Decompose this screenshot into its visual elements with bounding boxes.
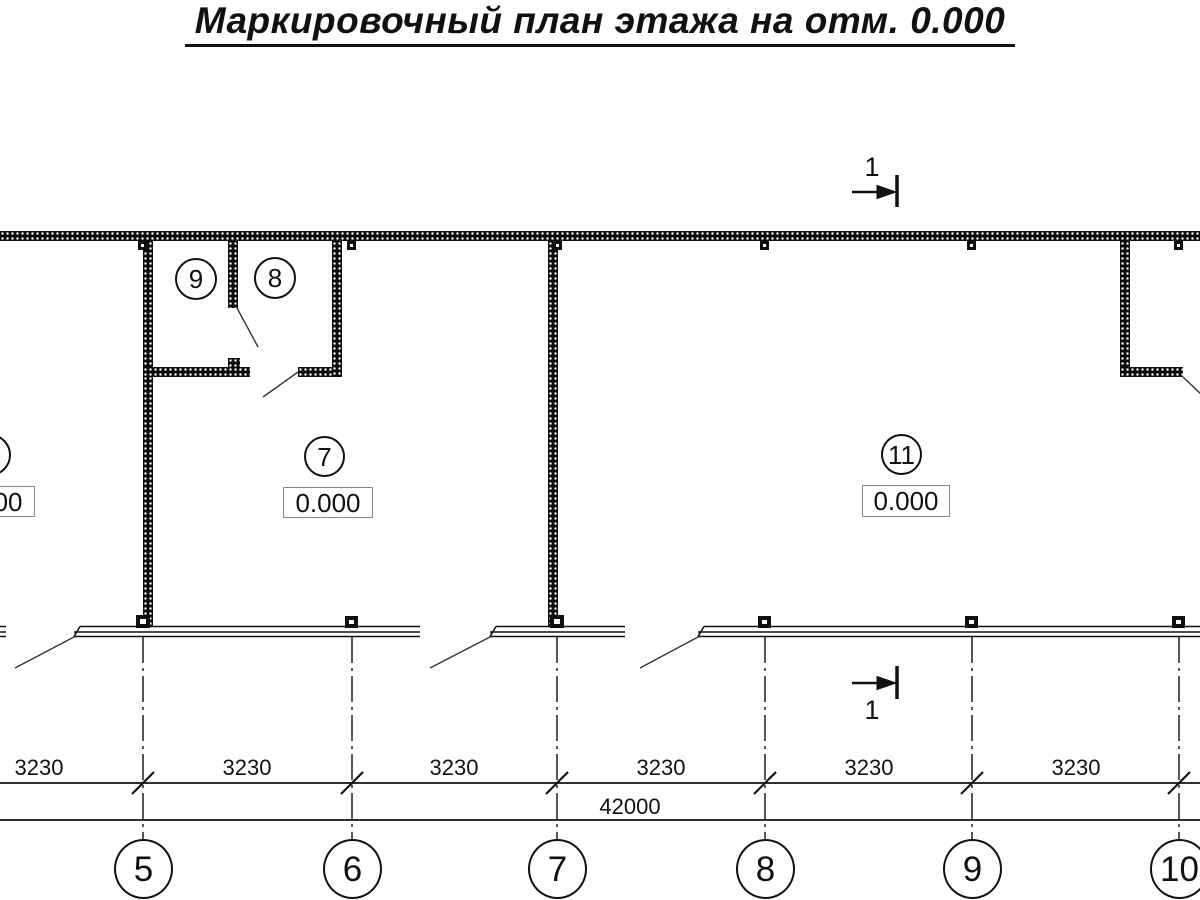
axis-bubble-9: 9 [943, 839, 1002, 899]
elevation-box-room7: 0.000 [283, 487, 373, 518]
door-leaf-room9 [237, 308, 258, 347]
drawing-title-text: Маркировочный план этажа на отм. 0.000 [185, 2, 1016, 47]
dim-bay-3: 3230 [414, 757, 494, 779]
sill-marker-axis-10 [1172, 616, 1185, 628]
room-bubble-11: 11 [881, 434, 922, 475]
section-label-top-text: 1 [864, 152, 879, 182]
break-line-1 [15, 637, 74, 668]
top-marker-axis-8 [760, 241, 769, 250]
wall-room9-bottom [143, 367, 250, 377]
room-number-8: 8 [268, 265, 282, 291]
section-bottom-arrowhead [877, 677, 896, 690]
room-bubble-9: 9 [175, 258, 217, 300]
axis-bubble-5: 5 [114, 839, 173, 899]
axis-label-10: 10 [1160, 852, 1199, 887]
dim-bay-2: 3230 [207, 757, 287, 779]
dimension-line-bays [0, 772, 1200, 794]
sill-band-2 [490, 627, 625, 637]
section-label-bottom-text: 1 [864, 695, 879, 725]
axis-label-6: 6 [343, 852, 362, 887]
section-top-arrowhead [877, 186, 896, 199]
axis-label-7: 7 [548, 852, 567, 887]
sill-band-1 [74, 627, 420, 637]
top-marker-axis-5 [138, 241, 147, 250]
section-label-top: 1 [855, 154, 889, 181]
elevation-value-left: 0.000 [0, 489, 23, 515]
room-number-11: 11 [888, 442, 915, 468]
elevation-box-left-partial: 0.000 [0, 486, 35, 517]
opening-break-lines [15, 637, 698, 668]
room-bubble-8: 8 [254, 257, 296, 299]
break-line-2 [430, 637, 490, 668]
door-leaf-room8 [263, 372, 298, 397]
axis-bubble-6: 6 [323, 839, 382, 899]
room-bubble-7: 7 [304, 436, 345, 477]
plan-linework [0, 0, 1200, 900]
sill-band-3 [698, 627, 1200, 637]
elevation-value-room7: 0.000 [295, 490, 360, 516]
axis-label-8: 8 [756, 852, 775, 887]
dim-bay-5: 3230 [829, 757, 909, 779]
sill-band-edge [0, 627, 6, 637]
axis-label-9: 9 [963, 852, 982, 887]
dim-total: 42000 [590, 796, 670, 818]
dim-bay-4: 3230 [621, 757, 701, 779]
wall-axis-5 [143, 241, 153, 626]
sill-marker-axis-7 [550, 615, 564, 628]
sill-marker-axis-5 [136, 615, 150, 628]
break-line-3 [640, 637, 698, 668]
top-marker-axis-9 [967, 241, 976, 250]
door-leaf-right-room [1183, 377, 1200, 395]
sill-marker-axis-6 [345, 616, 358, 628]
axis-bubble-10: 10 [1150, 839, 1200, 899]
drawing-title: Маркировочный план этажа на отм. 0.000 [0, 0, 1200, 47]
dim-bay-6: 3230 [1036, 757, 1116, 779]
axis-label-5: 5 [134, 852, 153, 887]
room-number-9: 9 [189, 266, 203, 292]
room-number-7: 7 [317, 444, 331, 470]
section-label-bottom: 1 [855, 697, 889, 724]
window-sill-bands [0, 627, 1200, 637]
wall-room8-right [332, 241, 342, 377]
sill-marker-axis-8 [758, 616, 771, 628]
top-marker-axis-6 [347, 241, 356, 250]
wall-right-room-left [1120, 241, 1130, 377]
partition-room9-room8 [228, 241, 238, 308]
axis-bubble-7: 7 [528, 839, 587, 899]
door-leaves [237, 308, 1200, 397]
top-marker-axis-10 [1174, 241, 1183, 250]
floor-plan-drawing: Маркировочный план этажа на отм. 0.000 9… [0, 0, 1200, 900]
sill-marker-axis-9 [965, 616, 978, 628]
elevation-box-room11: 0.000 [862, 485, 950, 517]
top-marker-axis-7 [553, 241, 562, 250]
wall-axis-7 [548, 241, 558, 626]
dim-bay-1: 3230 [0, 757, 79, 779]
wall-right-room-bottom [1120, 367, 1183, 377]
elevation-value-room11: 0.000 [873, 488, 938, 514]
axis-bubble-8: 8 [736, 839, 795, 899]
wall-exterior-top [0, 231, 1200, 241]
